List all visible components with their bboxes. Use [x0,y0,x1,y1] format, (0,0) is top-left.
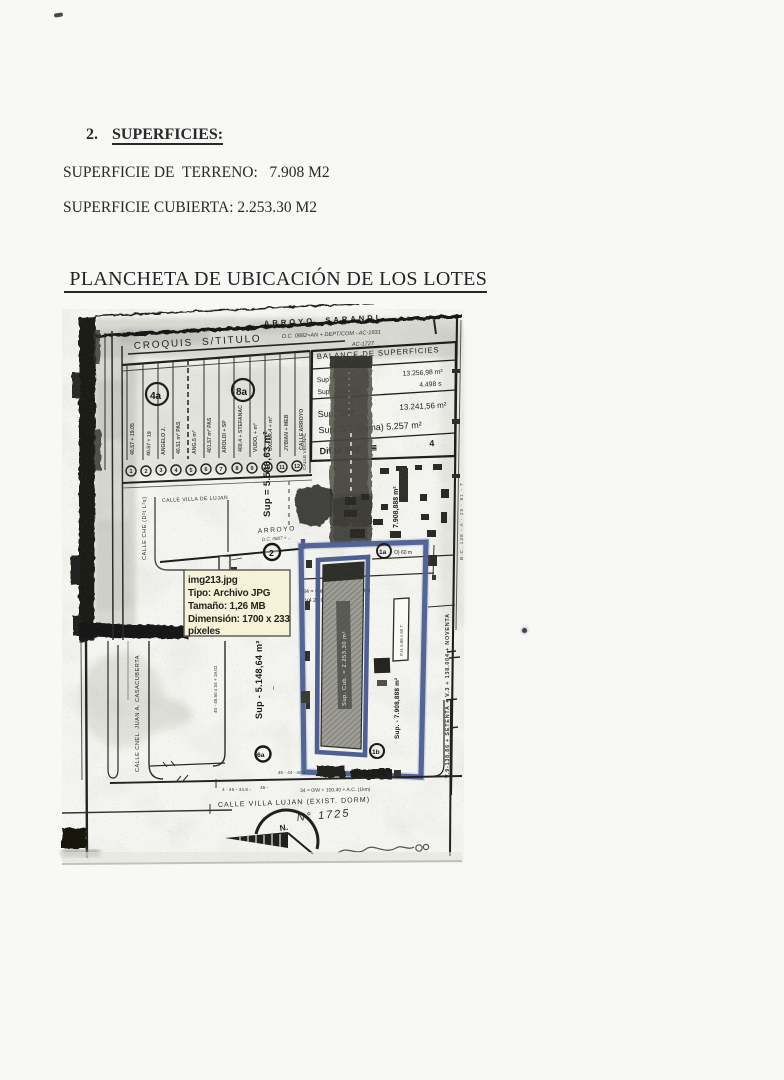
svg-text:Dimensión: 1700 x 233: Dimensión: 1700 x 233 [188,614,290,625]
svg-text:img213.jpg: img213.jpg [188,575,238,586]
svg-text:píxeles: píxeles [188,626,221,637]
svg-text:Tipo: Archivo JPG: Tipo: Archivo JPG [188,588,271,599]
svg-text:Tamaño: 1,26 MB: Tamaño: 1,26 MB [188,601,266,612]
